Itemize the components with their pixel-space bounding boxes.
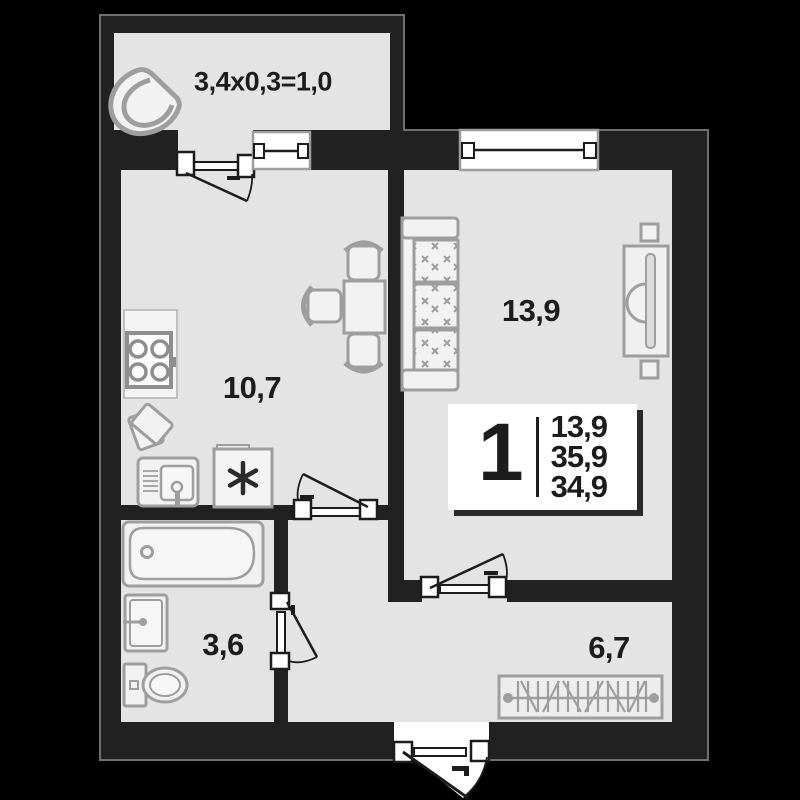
reduced-area-value: 34,9: [551, 472, 607, 502]
balcony-area-label: 3,4x0,3=1,0: [194, 67, 332, 98]
apartment-info-badge: 1 13,9 35,9 34,9: [448, 404, 637, 510]
bathtub-icon: [123, 522, 263, 586]
stove-icon: [124, 310, 177, 398]
sofa-icon: [402, 218, 458, 390]
living-room-area-label: 13,9: [502, 293, 560, 329]
total-area-value: 35,9: [551, 442, 607, 472]
kitchen-sink-icon: [138, 458, 198, 506]
badge-areas: 13,9 35,9 34,9: [551, 412, 607, 502]
kitchen-area-label: 10,7: [223, 370, 281, 406]
chair-icon: [304, 287, 342, 325]
living-room-window-icon: [460, 130, 598, 170]
hallway-area-label: 6,7: [588, 630, 630, 666]
balcony-window-icon: [253, 132, 310, 169]
floor-plan: 3,4x0,3=1,0 10,7 13,9 3,6 6,7 1 13,9 35,…: [0, 0, 800, 800]
bathroom-area-label: 3,6: [202, 627, 244, 663]
washbasin-icon: [123, 595, 167, 651]
tv-stand-icon: [624, 224, 668, 378]
floor-plan-drawing: [0, 0, 800, 800]
corridor-floor: [288, 520, 388, 722]
wardrobe-icon: [499, 676, 662, 718]
toilet-icon: [124, 664, 187, 706]
badge-divider: [536, 417, 539, 497]
speaker-icon: [641, 224, 658, 241]
speaker-icon: [641, 361, 658, 378]
room-count: 1: [478, 412, 524, 494]
chair-icon: [345, 334, 382, 371]
entrance-door-icon: [394, 722, 489, 798]
living-area-value: 13,9: [551, 412, 607, 442]
chair-icon: [345, 243, 382, 280]
fridge-icon: [214, 445, 272, 507]
